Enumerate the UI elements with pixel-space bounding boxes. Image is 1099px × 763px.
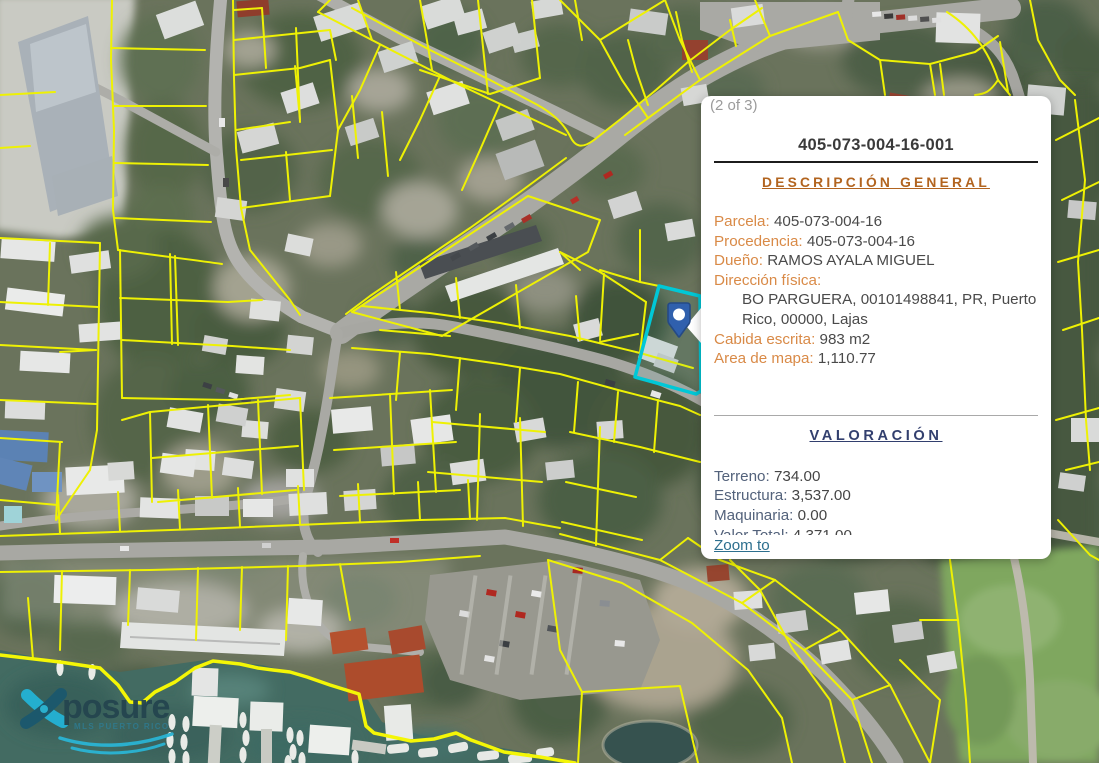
svg-text:posure: posure (62, 688, 169, 726)
svg-text:MLS PUERTO RICO: MLS PUERTO RICO (74, 722, 170, 731)
